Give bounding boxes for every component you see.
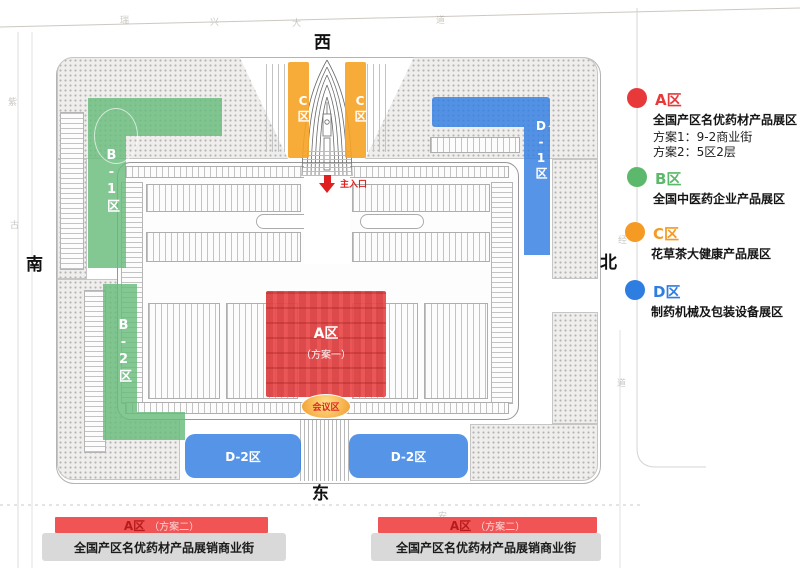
zone-d2-right-label: D-2区: [391, 448, 427, 465]
zone-d2-right: D-2区: [349, 434, 468, 478]
zone-b2-horizontal: [103, 412, 185, 440]
banner-right-title-bar: A区 （方案二）: [378, 517, 597, 533]
entrance-arrow-icon: [319, 183, 335, 193]
south-grand-stairs: [300, 420, 352, 481]
road-label-char: 兴: [210, 15, 219, 28]
conference-area-badge: 会议区: [301, 394, 351, 419]
zone-a-scheme: （方案一）: [266, 346, 386, 361]
zone-b1-horizontal: [126, 98, 222, 136]
building-units-band: [146, 232, 301, 262]
entrance-steps: [303, 150, 351, 176]
legend-title-a: A区: [655, 89, 682, 110]
banner-left-title-bar: A区 （方案二）: [55, 517, 268, 533]
main-entrance-label: 主入口: [340, 177, 367, 190]
zone-b2-label: B-2区: [110, 308, 130, 393]
compass-north: 北: [600, 248, 617, 273]
road-label-char: 瑞: [120, 13, 129, 26]
banner-left-desc: 全国产区名优药材产品展销商业街: [74, 539, 254, 556]
legend-desc-a: 全国产区名优药材产品展区: [653, 111, 797, 128]
banner-left-scheme: （方案二）: [149, 518, 199, 533]
plaza-colonnade-left: [266, 64, 286, 152]
legend-dot-a: [627, 88, 647, 108]
landscape-right-strip: [552, 159, 598, 279]
landscape-bottom-right: [470, 424, 598, 481]
courtyard-feature: [360, 214, 424, 229]
zone-c-right-label: C区: [345, 88, 366, 130]
road-label-char: 道: [617, 376, 626, 389]
legend-line-a2: 方案2：5区2层: [653, 143, 736, 160]
road-label-char: 古: [10, 218, 19, 231]
legend-dot-c: [625, 222, 645, 242]
banner-left-title: A区: [124, 517, 145, 534]
road-label-char: 紫: [8, 95, 17, 108]
exhibition-hall: [148, 303, 220, 399]
road-label-char: 大: [292, 16, 301, 29]
building-units-band: [352, 184, 490, 212]
banner-left-desc-bar: 全国产区名优药材产品展销商业街: [42, 533, 286, 561]
exhibition-hall: [424, 303, 488, 399]
banner-right-desc-bar: 全国产区名优药材产品展销商业街: [371, 533, 601, 561]
zone-d1-label: D-1区: [527, 116, 547, 184]
building-units-band: [352, 232, 490, 262]
legend-title-c: C区: [653, 223, 679, 244]
plaza-colonnade-right: [367, 64, 387, 152]
banner-right-title: A区: [450, 517, 471, 534]
landscape-right-lower: [552, 312, 598, 424]
legend-title-b: B区: [655, 168, 681, 189]
road-label-char: 道: [436, 13, 445, 26]
parking-row-top-right: [430, 137, 520, 153]
legend-dot-b: [627, 167, 647, 187]
banner-right-desc: 全国产区名优药材产品展销商业街: [396, 539, 576, 556]
parking-rows-left: [60, 112, 84, 270]
compass-west: 西: [314, 28, 331, 53]
zone-a-main: A区 （方案一）: [266, 291, 386, 397]
zone-d2-left-label: D-2区: [225, 448, 261, 465]
entrance-arrow-icon: [324, 175, 331, 183]
legend-desc-b: 全国中医药企业产品展区: [653, 190, 785, 207]
legend-desc-c: 花草茶大健康产品展区: [651, 245, 771, 262]
banner-right-scheme: （方案二）: [475, 518, 525, 533]
building-right-units-column: [491, 182, 513, 404]
site-plan-page: B-1区 B-2区 C区 C区 D-1区 D-2区 D-2区 A区 （方案一） …: [0, 0, 800, 568]
zone-c-left-label: C区: [288, 88, 309, 130]
conference-label: 会议区: [312, 400, 339, 413]
building-units-band: [146, 184, 301, 212]
legend-title-d: D区: [653, 281, 680, 302]
zone-d2-left: D-2区: [185, 434, 301, 478]
compass-east: 东: [312, 479, 329, 504]
zone-a-title: A区: [266, 323, 386, 343]
legend-desc-d: 制药机械及包装设备展区: [651, 303, 783, 320]
compass-south: 南: [26, 250, 43, 275]
zone-b1-label: B-1区: [96, 128, 118, 233]
legend-dot-d: [625, 280, 645, 300]
